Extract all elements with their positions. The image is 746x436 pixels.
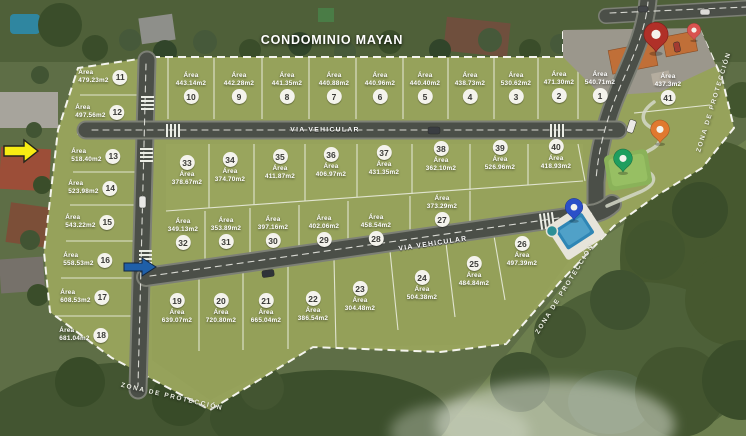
lot-33: 33 Área 378.67m2	[172, 155, 202, 187]
lot-22: 22 Área 386.54m2	[298, 291, 328, 323]
lot-area-value: 411.87m2	[265, 173, 295, 181]
lot-label: Área 479.23m2	[78, 69, 108, 85]
lot-area-value: 418.93m2	[541, 163, 571, 171]
lot-area-value: 378.67m2	[172, 179, 202, 187]
lot-20: 20 Área 720.80m2	[206, 293, 236, 325]
lot-area-value: 406.97m2	[316, 171, 346, 179]
lot-area-value: 440.88m2	[319, 80, 349, 88]
lot-area-label: Área	[179, 171, 194, 179]
lot-area-value: 349.13m2	[168, 226, 198, 234]
lot-number-badge: 26	[514, 236, 529, 251]
lot-number-badge: 32	[175, 235, 190, 250]
lot-area-value: 720.80m2	[206, 317, 236, 325]
lot-label: Área 523.98m2	[68, 180, 98, 196]
lot-number-badge: 13	[106, 149, 121, 164]
lot-7: 7 Área 440.88m2	[319, 72, 349, 104]
lot-label: Área 362.10m2	[426, 157, 456, 173]
lot-area-value: 523.98m2	[68, 188, 98, 196]
lot-area-label: Área	[323, 163, 338, 171]
lot-label: Área 406.97m2	[316, 163, 346, 179]
lot-15: 15 Área 543.22m2	[65, 214, 114, 230]
lot-area-value: 665.04m2	[251, 317, 281, 325]
lot-area-label: Área	[59, 327, 74, 335]
lot-area-label: Área	[265, 216, 280, 224]
lot-41: 41 Área 437.3m2	[655, 73, 682, 105]
lot-area-value: 497.56m2	[75, 112, 105, 120]
lot-label: Área 639.07m2	[162, 309, 192, 325]
lot-1: 1 Área 540.71m2	[585, 71, 615, 103]
site-plan-map: CONDOMINIO MAYAN VIA VEHICULAR VIA VEHIC…	[0, 0, 746, 436]
lot-23: 23 Área 304.48m2	[345, 281, 375, 313]
lot-area-label: Área	[368, 214, 383, 222]
lot-number-badge: 27	[434, 212, 449, 227]
lot-label: Área 497.39m2	[507, 252, 537, 268]
lot-label: Área 440.88m2	[319, 72, 349, 88]
lot-14: 14 Área 523.98m2	[68, 180, 117, 196]
lot-number-badge: 8	[279, 89, 294, 104]
lot-area-value: 540.71m2	[585, 79, 615, 87]
lot-label: Área 373.29m2	[427, 195, 457, 211]
lot-3: 3 Área 530.62m2	[501, 72, 531, 104]
lot-area-value: 608.53m2	[60, 297, 90, 305]
lot-label: Área 540.71m2	[585, 71, 615, 87]
lot-number-badge: 5	[417, 89, 432, 104]
lot-area-label: Área	[352, 297, 367, 305]
lot-4: 4 Área 438.73m2	[455, 72, 485, 104]
lot-label: Área 431.35m2	[369, 161, 399, 177]
lot-17: 17 Área 608.53m2	[60, 289, 109, 305]
lot-label: Área 397.16m2	[258, 216, 288, 232]
lot-number-badge: 21	[258, 293, 273, 308]
lot-area-value: 440.96m2	[365, 80, 395, 88]
lot-label: Área 304.48m2	[345, 297, 375, 313]
lot-area-label: Área	[183, 72, 198, 80]
lot-area-value: 386.54m2	[298, 315, 328, 323]
lot-area-label: Área	[433, 157, 448, 165]
lot-number-badge: 39	[492, 140, 507, 155]
lot-area-value: 304.48m2	[345, 305, 375, 313]
lot-area-value: 681.04m2	[59, 335, 89, 343]
lot-area-value: 530.62m2	[501, 80, 531, 88]
lot-number-badge: 7	[326, 89, 341, 104]
lot-area-value: 518.40m2	[71, 156, 101, 164]
lot-area-label: Área	[169, 309, 184, 317]
lot-number-badge: 37	[376, 145, 391, 160]
lot-area-label: Área	[60, 289, 75, 297]
lot-label: Área 441.35m2	[272, 72, 302, 88]
lot-label: Área 440.40m2	[410, 72, 440, 88]
lot-13: 13 Área 518.40m2	[71, 148, 120, 164]
lot-area-label: Área	[71, 148, 86, 156]
lot-area-value: 458.54m2	[361, 222, 391, 230]
lot-area-value: 438.73m2	[455, 80, 485, 88]
lot-40: 40 Área 418.93m2	[541, 139, 571, 171]
lot-9: 9 Área 442.28m2	[224, 72, 254, 104]
lot-number-badge: 22	[305, 291, 320, 306]
lot-label: Área 438.73m2	[455, 72, 485, 88]
lot-number-badge: 18	[94, 328, 109, 343]
lot-area-label: Área	[78, 69, 93, 77]
lot-label: Área 437.3m2	[655, 73, 682, 89]
lot-area-label: Área	[68, 180, 83, 188]
lot-28: 28 Área 458.54m2	[361, 214, 391, 246]
lot-5: 5 Área 440.40m2	[410, 72, 440, 104]
lot-39: 39 Área 526.96m2	[485, 140, 515, 172]
lot-label: Área 558.53m2	[63, 252, 93, 268]
lot-21: 21 Área 665.04m2	[251, 293, 281, 325]
lot-label: Área 526.96m2	[485, 156, 515, 172]
lot-number-badge: 24	[414, 270, 429, 285]
lot-number-badge: 30	[265, 233, 280, 248]
lot-label: Área 530.62m2	[501, 72, 531, 88]
lot-number-badge: 2	[551, 88, 566, 103]
lot-label: Área 411.87m2	[265, 165, 295, 181]
lot-area-label: Área	[660, 73, 675, 81]
lot-area-value: 362.10m2	[426, 165, 456, 173]
lot-area-label: Área	[231, 72, 246, 80]
lot-number-badge: 14	[103, 181, 118, 196]
lot-number-badge: 25	[466, 256, 481, 271]
lot-32: 32 Área 349.13m2	[168, 218, 198, 250]
lot-area-label: Área	[305, 307, 320, 315]
lot-label: Área 386.54m2	[298, 307, 328, 323]
lot-area-label: Área	[434, 195, 449, 203]
lot-area-value: 437.3m2	[655, 81, 682, 89]
lot-label: Área 543.22m2	[65, 214, 95, 230]
lot-label: Área 374.70m2	[215, 168, 245, 184]
lot-26: 26 Área 497.39m2	[507, 236, 537, 268]
lot-number-badge: 6	[372, 89, 387, 104]
lot-label: Área 720.80m2	[206, 309, 236, 325]
lot-number-badge: 34	[222, 152, 237, 167]
lot-label: Área 378.67m2	[172, 171, 202, 187]
lot-number-badge: 35	[273, 149, 288, 164]
lot-area-label: Área	[75, 104, 90, 112]
lot-area-label: Área	[175, 218, 190, 226]
lot-number-badge: 4	[462, 89, 477, 104]
lot-2: 2 Área 471.30m2	[544, 71, 574, 103]
lot-area-value: 441.35m2	[272, 80, 302, 88]
lot-16: 16 Área 558.53m2	[63, 252, 112, 268]
lot-area-value: 443.14m2	[176, 80, 206, 88]
lot-label: Área 471.30m2	[544, 71, 574, 87]
lot-number-badge: 29	[316, 232, 331, 247]
lot-area-label: Área	[466, 272, 481, 280]
lot-25: 25 Área 484.84m2	[459, 256, 489, 288]
lot-area-value: 374.70m2	[215, 176, 245, 184]
lot-number-badge: 17	[95, 290, 110, 305]
lot-area-value: 639.07m2	[162, 317, 192, 325]
lot-area-label: Área	[376, 161, 391, 169]
lot-label: Área 418.93m2	[541, 155, 571, 171]
lot-number-badge: 40	[548, 139, 563, 154]
lot-area-label: Área	[414, 286, 429, 294]
lot-number-badge: 11	[113, 70, 128, 85]
lot-number-badge: 3	[508, 89, 523, 104]
lot-number-badge: 9	[231, 89, 246, 104]
lot-18: 18 Área 681.04m2	[59, 327, 108, 343]
lot-label: Área 608.53m2	[60, 289, 90, 305]
lot-number-badge: 20	[213, 293, 228, 308]
lot-number-badge: 41	[660, 90, 675, 105]
lot-11: 11 Área 479.23m2	[78, 69, 127, 85]
lot-36: 36 Área 406.97m2	[316, 147, 346, 179]
lot-area-label: Área	[213, 309, 228, 317]
lot-number-badge: 16	[98, 253, 113, 268]
lot-area-label: Área	[592, 71, 607, 79]
lot-label: Área 681.04m2	[59, 327, 89, 343]
lot-number-badge: 36	[323, 147, 338, 162]
lots-layer: 1 Área 540.71m2 2 Área 471.30m2 3 Área 5…	[0, 0, 746, 436]
lot-label: Área 458.54m2	[361, 214, 391, 230]
lot-area-label: Área	[272, 165, 287, 173]
lot-area-label: Área	[372, 72, 387, 80]
lot-29: 29 Área 402.06m2	[309, 215, 339, 247]
lot-area-label: Área	[514, 252, 529, 260]
lot-area-value: 484.84m2	[459, 280, 489, 288]
lot-area-label: Área	[218, 217, 233, 225]
lot-34: 34 Área 374.70m2	[215, 152, 245, 184]
lot-number-badge: 19	[169, 293, 184, 308]
lot-number-badge: 31	[218, 234, 233, 249]
lot-8: 8 Área 441.35m2	[272, 72, 302, 104]
lot-area-value: 353.89m2	[211, 225, 241, 233]
lot-area-label: Área	[222, 168, 237, 176]
lot-area-label: Área	[63, 252, 78, 260]
lot-number-badge: 15	[100, 215, 115, 230]
lot-area-value: 479.23m2	[78, 77, 108, 85]
lot-6: 6 Área 440.96m2	[365, 72, 395, 104]
lot-area-value: 431.35m2	[369, 169, 399, 177]
lot-30: 30 Área 397.16m2	[258, 216, 288, 248]
lot-label: Área 518.40m2	[71, 148, 101, 164]
lot-area-value: 397.16m2	[258, 224, 288, 232]
lot-area-value: 471.30m2	[544, 79, 574, 87]
lot-24: 24 Área 504.38m2	[407, 270, 437, 302]
lot-area-value: 440.40m2	[410, 80, 440, 88]
lot-12: 12 Área 497.56m2	[75, 104, 124, 120]
lot-area-value: 373.29m2	[427, 203, 457, 211]
lot-area-label: Área	[417, 72, 432, 80]
lot-number-badge: 10	[183, 89, 198, 104]
lot-label: Área 504.38m2	[407, 286, 437, 302]
lot-area-label: Área	[258, 309, 273, 317]
lot-number-badge: 33	[179, 155, 194, 170]
lot-area-value: 504.38m2	[407, 294, 437, 302]
lot-label: Área 353.89m2	[211, 217, 241, 233]
lot-label: Área 443.14m2	[176, 72, 206, 88]
lot-area-value: 558.53m2	[63, 260, 93, 268]
lot-area-value: 543.22m2	[65, 222, 95, 230]
lot-label: Área 442.28m2	[224, 72, 254, 88]
lot-number-badge: 38	[433, 141, 448, 156]
lot-label: Área 484.84m2	[459, 272, 489, 288]
lot-19: 19 Área 639.07m2	[162, 293, 192, 325]
lot-number-badge: 23	[352, 281, 367, 296]
lot-label: Área 402.06m2	[309, 215, 339, 231]
lot-area-label: Área	[65, 214, 80, 222]
lot-number-badge: 12	[110, 105, 125, 120]
lot-area-label: Área	[326, 72, 341, 80]
lot-label: Área 497.56m2	[75, 104, 105, 120]
lot-area-value: 526.96m2	[485, 164, 515, 172]
lot-area-label: Área	[551, 71, 566, 79]
lot-area-value: 402.06m2	[309, 223, 339, 231]
lot-label: Área 440.96m2	[365, 72, 395, 88]
lot-label: Área 349.13m2	[168, 218, 198, 234]
lot-label: Área 665.04m2	[251, 309, 281, 325]
lot-area-value: 442.28m2	[224, 80, 254, 88]
lot-area-label: Área	[548, 155, 563, 163]
lot-number-badge: 28	[368, 231, 383, 246]
lot-area-value: 497.39m2	[507, 260, 537, 268]
lot-27: 27 Área 373.29m2	[427, 195, 457, 227]
lot-number-badge: 1	[592, 88, 607, 103]
lot-38: 38 Área 362.10m2	[426, 141, 456, 173]
lot-31: 31 Área 353.89m2	[211, 217, 241, 249]
lot-37: 37 Área 431.35m2	[369, 145, 399, 177]
lot-area-label: Área	[492, 156, 507, 164]
lot-10: 10 Área 443.14m2	[176, 72, 206, 104]
lot-35: 35 Área 411.87m2	[265, 149, 295, 181]
lot-area-label: Área	[316, 215, 331, 223]
lot-area-label: Área	[279, 72, 294, 80]
lot-area-label: Área	[462, 72, 477, 80]
lot-area-label: Área	[508, 72, 523, 80]
